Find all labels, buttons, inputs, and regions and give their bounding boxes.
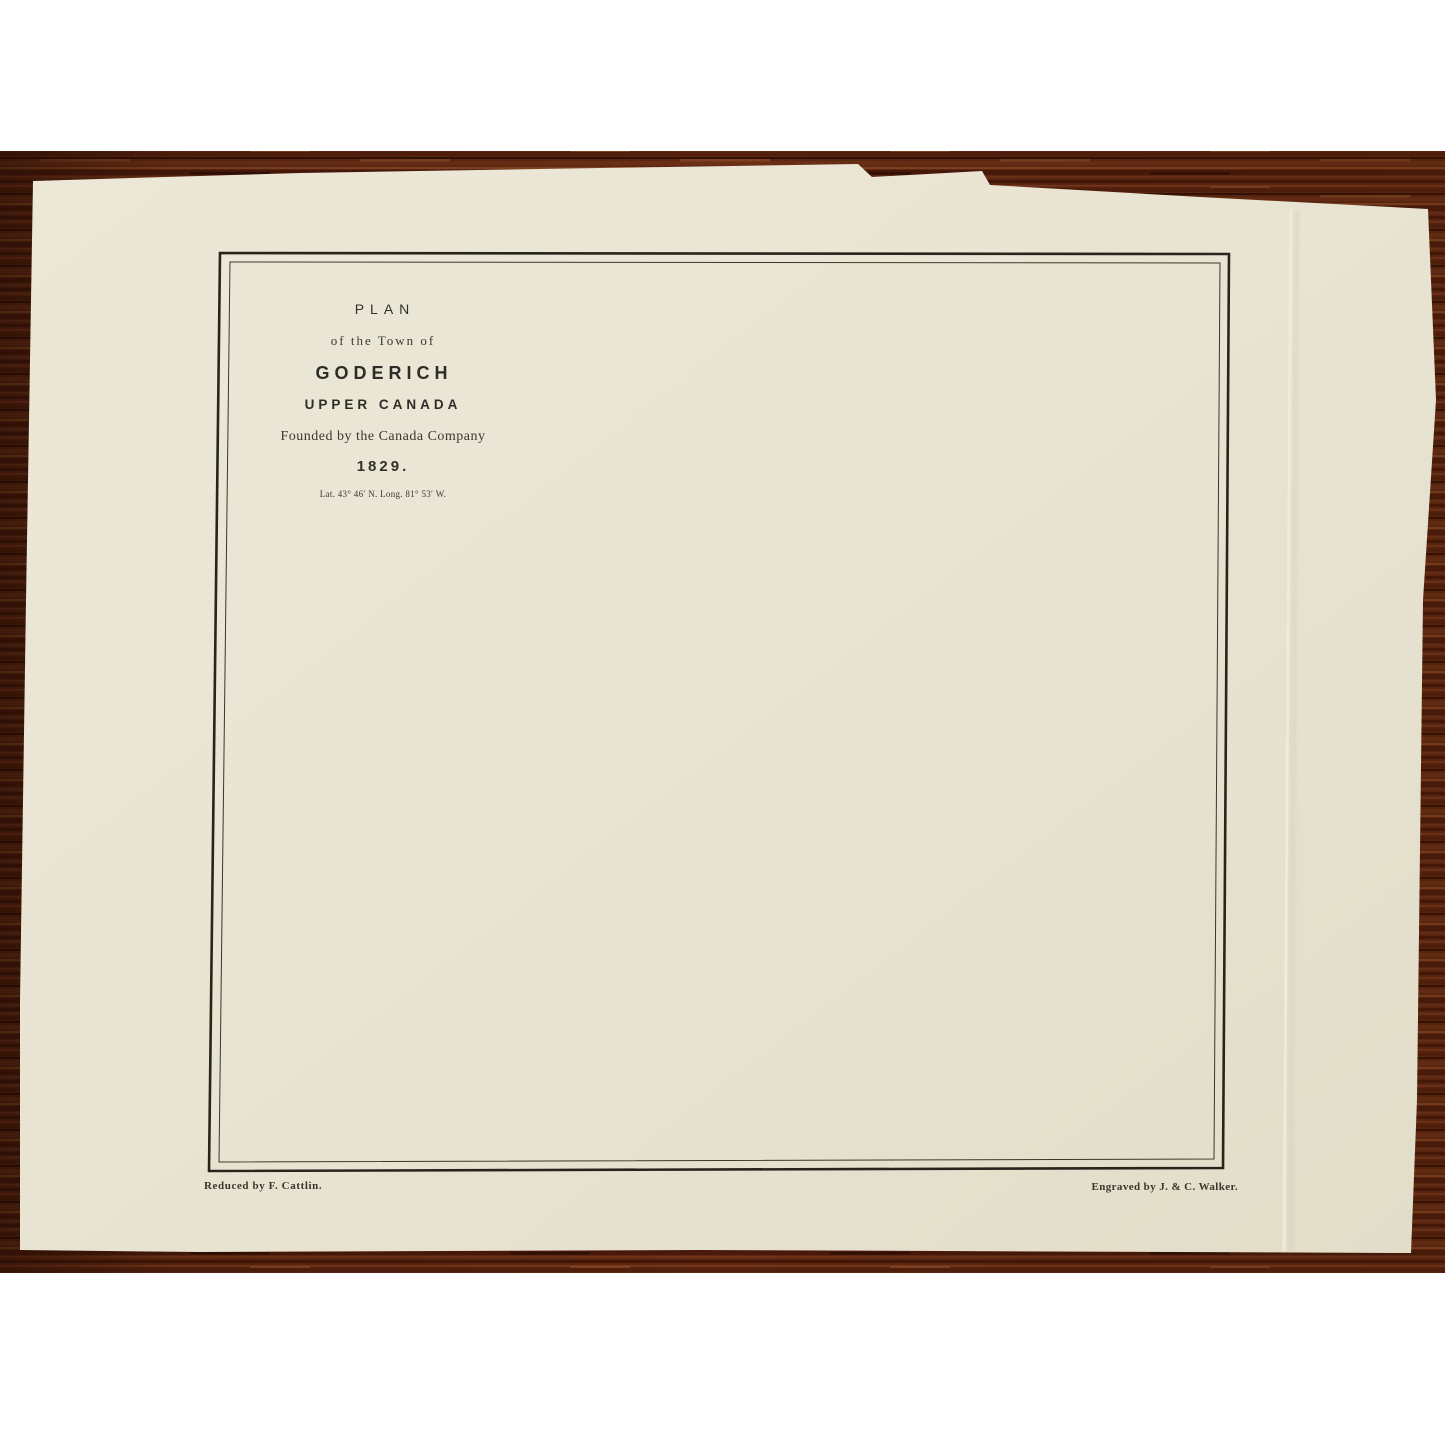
svg-text:PLAN: PLAN (355, 301, 416, 317)
svg-text:Lat. 43° 46′ N. Long. 81° 53′: Lat. 43° 46′ N. Long. 81° 53′ W. (320, 489, 446, 499)
svg-text:Engraved by J. & C. Walker.: Engraved by J. & C. Walker. (1092, 1181, 1239, 1193)
svg-text:1829.: 1829. (357, 458, 410, 475)
svg-text:Reduced by F. Cattlin.: Reduced by F. Cattlin. (204, 1180, 322, 1192)
svg-text:GODERICH: GODERICH (315, 363, 452, 383)
svg-text:of the Town of: of the Town of (331, 333, 435, 348)
svg-text:Founded by the Canada Company: Founded by the Canada Company (280, 429, 485, 444)
svg-text:UPPER CANADA: UPPER CANADA (305, 397, 462, 412)
